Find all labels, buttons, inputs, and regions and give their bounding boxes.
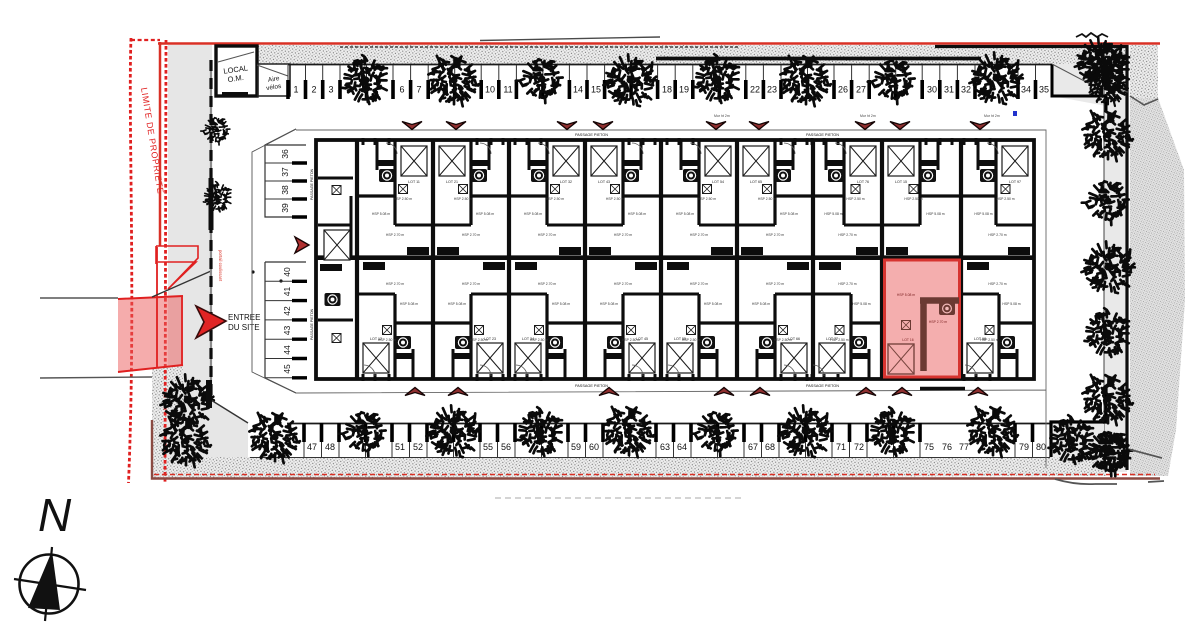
svg-text:22: 22 [750,85,760,95]
svg-text:LOT 43: LOT 43 [598,180,610,184]
svg-text:72: 72 [854,442,864,452]
svg-text:2: 2 [311,85,316,95]
svg-text:PASSAGE PIETON: PASSAGE PIETON [310,308,314,340]
svg-text:HSP 2.50 m: HSP 2.50 m [606,197,624,201]
svg-text:HSP 2.70 m: HSP 2.70 m [838,282,856,286]
svg-text:36: 36 [280,149,290,159]
svg-text:31: 31 [944,85,954,95]
svg-text:HSP 5.08 m: HSP 5.08 m [1002,302,1020,306]
svg-text:HSP 2.50 m: HSP 2.50 m [546,197,564,201]
svg-text:LOT 32: LOT 32 [560,180,572,184]
svg-text:3: 3 [328,85,333,95]
svg-text:75: 75 [924,442,934,452]
svg-text:42: 42 [282,306,292,316]
svg-text:HSP 2.70 m: HSP 2.70 m [614,233,632,237]
svg-text:19: 19 [679,85,689,95]
svg-text:56: 56 [501,442,511,452]
svg-text:40: 40 [282,267,292,277]
svg-text:HSP 5.08 m: HSP 5.08 m [400,302,418,306]
svg-text:LOT 11: LOT 11 [408,180,420,184]
svg-text:HSP 2.50 m: HSP 2.50 m [470,338,488,342]
svg-text:39: 39 [280,203,290,213]
svg-text:HSP 2.70 m: HSP 2.70 m [386,233,404,237]
svg-text:HSP 2.70 m: HSP 2.70 m [766,233,784,237]
svg-text:10: 10 [485,85,495,95]
svg-text:Mur ht 2m: Mur ht 2m [714,114,730,118]
svg-text:Mur ht 2m: Mur ht 2m [984,114,1000,118]
svg-text:80: 80 [1036,442,1046,452]
svg-text:HSP 2.70 m: HSP 2.70 m [690,233,708,237]
svg-text:HSP 2.70 m: HSP 2.70 m [614,282,632,286]
svg-text:HSP 5.08 m: HSP 5.08 m [600,302,618,306]
svg-text:60: 60 [589,442,599,452]
svg-text:11: 11 [503,85,512,95]
svg-text:32: 32 [961,85,971,95]
svg-text:HSP 2.70 m: HSP 2.70 m [538,233,556,237]
svg-text:LOT 54: LOT 54 [712,180,724,184]
svg-text:HSP 5.08 m: HSP 5.08 m [824,212,842,216]
svg-text:HSP 2.50 m: HSP 2.50 m [830,338,848,342]
svg-text:15: 15 [591,85,601,95]
svg-text:PASSAGE PIETON: PASSAGE PIETON [575,133,608,137]
svg-text:PASSAGE PIETON: PASSAGE PIETON [310,168,314,200]
svg-text:38: 38 [280,185,290,195]
svg-text:HSP 2.70 m: HSP 2.70 m [988,233,1006,237]
svg-text:59: 59 [571,442,581,452]
svg-text:52: 52 [413,442,423,452]
svg-text:LOT 97: LOT 97 [1009,180,1021,184]
svg-text:LOT 76: LOT 76 [857,180,869,184]
svg-text:7: 7 [416,85,421,95]
svg-text:Mur ht 2m: Mur ht 2m [860,114,876,118]
svg-text:HSP 2.70 m: HSP 2.70 m [988,282,1006,286]
svg-text:47: 47 [307,442,317,452]
svg-text:23: 23 [767,85,777,95]
svg-text:71: 71 [836,442,846,452]
svg-text:HSP 2.50 m: HSP 2.50 m [622,338,640,342]
svg-text:HSP 2.70 m: HSP 2.70 m [538,282,556,286]
svg-text:HSP 2.50 m: HSP 2.50 m [774,338,792,342]
svg-text:HSP 5.08 m: HSP 5.08 m [852,302,870,306]
svg-text:HSP 5.08 m: HSP 5.08 m [552,302,570,306]
svg-text:LOT 65: LOT 65 [750,180,762,184]
svg-text:44: 44 [282,345,292,355]
svg-text:HSP 2.50 m: HSP 2.50 m [378,338,396,342]
svg-text:37: 37 [280,167,290,177]
svg-text:PASSAGE PIETON: PASSAGE PIETON [806,384,839,388]
svg-text:portail coulissant: portail coulissant [218,250,223,282]
svg-text:HSP 5.08 m: HSP 5.08 m [628,212,646,216]
svg-text:1: 1 [293,85,298,95]
svg-text:43: 43 [282,326,292,336]
svg-text:LOT 16: LOT 16 [902,338,913,342]
svg-text:41: 41 [282,287,292,297]
svg-text:HSP 2.50 m: HSP 2.50 m [682,338,700,342]
svg-text:HSP 5.08 m: HSP 5.08 m [752,302,770,306]
svg-text:HSP 2.70 m: HSP 2.70 m [462,282,480,286]
svg-text:76: 76 [942,442,952,452]
svg-text:26: 26 [838,85,848,95]
svg-text:HSP 5.08 m: HSP 5.08 m [476,212,494,216]
svg-text:30: 30 [927,85,937,95]
svg-text:HSP 5.08 m: HSP 5.08 m [676,212,694,216]
svg-text:HSP 5.08 m: HSP 5.08 m [780,212,798,216]
svg-text:PASSAGE PIETON: PASSAGE PIETON [806,133,839,137]
svg-text:LOT 15: LOT 15 [895,180,907,184]
svg-text:HSP 5.08 m: HSP 5.08 m [524,212,542,216]
svg-text:HSP 2.50 m: HSP 2.50 m [904,197,922,201]
svg-text:HSP 2.50 m: HSP 2.50 m [980,338,998,342]
svg-text:79: 79 [1019,442,1029,452]
svg-text:HSP 2.50 m: HSP 2.50 m [454,197,472,201]
svg-text:HSP 2.50 m: HSP 2.50 m [846,197,864,201]
svg-text:34: 34 [1021,85,1031,95]
svg-text:67: 67 [748,442,758,452]
svg-text:18: 18 [662,85,672,95]
svg-text:48: 48 [325,442,335,452]
svg-text:HSP 2.70 m: HSP 2.70 m [929,320,947,324]
svg-text:HSP 5.08 m: HSP 5.08 m [448,302,466,306]
svg-text:HSP 2.70 m: HSP 2.70 m [690,282,708,286]
svg-text:77: 77 [959,442,969,452]
svg-text:45: 45 [282,364,292,374]
svg-text:63: 63 [660,442,670,452]
svg-text:DU SITE: DU SITE [228,323,260,332]
svg-text:HSP 5.08 m: HSP 5.08 m [974,212,992,216]
svg-text:HSP 5.08 m: HSP 5.08 m [926,212,944,216]
svg-text:HSP 5.08 m: HSP 5.08 m [372,212,390,216]
svg-text:HSP 2.50 m: HSP 2.50 m [758,197,776,201]
svg-text:64: 64 [677,442,687,452]
svg-text:HSP 5.08 m: HSP 5.08 m [704,302,722,306]
svg-text:HSP 2.70 m: HSP 2.70 m [766,282,784,286]
svg-text:HSP 2.50 m: HSP 2.50 m [530,338,548,342]
svg-text:27: 27 [856,85,866,95]
svg-text:14: 14 [573,85,583,95]
svg-text:HSP 2.70 m: HSP 2.70 m [386,282,404,286]
svg-text:ENTREE: ENTREE [228,313,260,322]
svg-text:35: 35 [1039,85,1049,95]
svg-text:HSP 2.50 m: HSP 2.50 m [698,197,716,201]
svg-text:N: N [38,489,72,541]
svg-text:HSP 2.70 m: HSP 2.70 m [462,233,480,237]
svg-text:6: 6 [399,85,404,95]
svg-text:HSP 2.50 m: HSP 2.50 m [996,197,1014,201]
svg-text:HSP 2.50 m: HSP 2.50 m [394,197,412,201]
svg-text:51: 51 [395,442,405,452]
svg-text:55: 55 [483,442,493,452]
svg-text:PASSAGE PIETON: PASSAGE PIETON [575,384,608,388]
svg-text:LOT 21: LOT 21 [446,180,458,184]
svg-text:HSP 5.08 m: HSP 5.08 m [897,293,915,297]
svg-text:HSP 2.70 m: HSP 2.70 m [838,233,856,237]
svg-text:68: 68 [765,442,775,452]
